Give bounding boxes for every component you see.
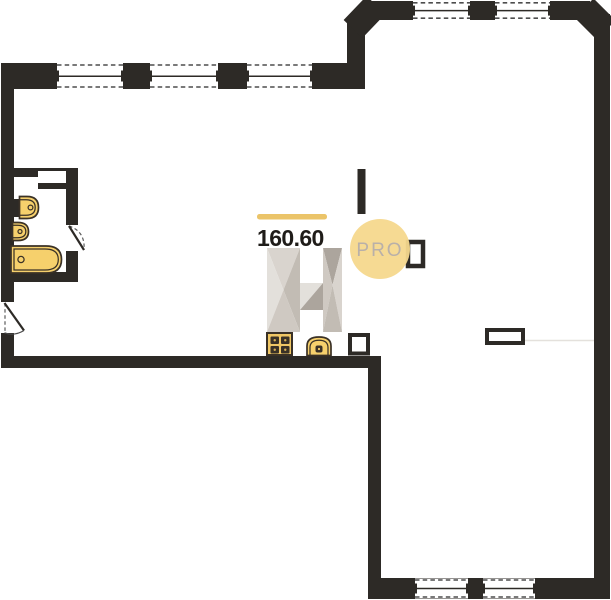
bathroom-wall-right-upper — [66, 168, 78, 225]
pro-badge: PRO — [350, 219, 410, 279]
wall-right — [594, 14, 610, 599]
window — [55, 63, 125, 89]
wall-divider-lower — [368, 356, 381, 599]
entrance-door — [1, 302, 24, 334]
bathroom-door — [66, 225, 84, 251]
window — [245, 63, 314, 89]
area-label: 160.60 — [257, 225, 324, 251]
hand-sink — [13, 223, 29, 241]
bathroom-niche-bottom-line — [38, 183, 66, 189]
window — [411, 1, 472, 20]
window — [413, 579, 470, 599]
floor-plan-page: 160.60 PRO — [0, 0, 611, 600]
wall-stub — [358, 169, 366, 214]
wall-cabinet — [487, 330, 523, 343]
bathroom-wall-top — [14, 168, 38, 177]
bathtub — [11, 246, 62, 273]
bathroom-niche-top-line — [38, 168, 66, 171]
window — [148, 63, 220, 89]
pro-badge-text: PRO — [356, 240, 403, 261]
washbasin — [14, 197, 39, 219]
wall-bottom-left — [1, 356, 381, 368]
area-underline — [257, 214, 327, 220]
window — [481, 579, 537, 599]
stove — [267, 333, 292, 355]
brand-logo-watermark — [267, 248, 342, 332]
wall-top-right — [362, 1, 590, 20]
window — [493, 1, 552, 20]
fixture-box — [408, 242, 423, 266]
kitchen-sink — [307, 337, 331, 356]
floor-plan: 160.60 PRO — [0, 0, 611, 600]
ventilation-shaft — [350, 335, 368, 354]
